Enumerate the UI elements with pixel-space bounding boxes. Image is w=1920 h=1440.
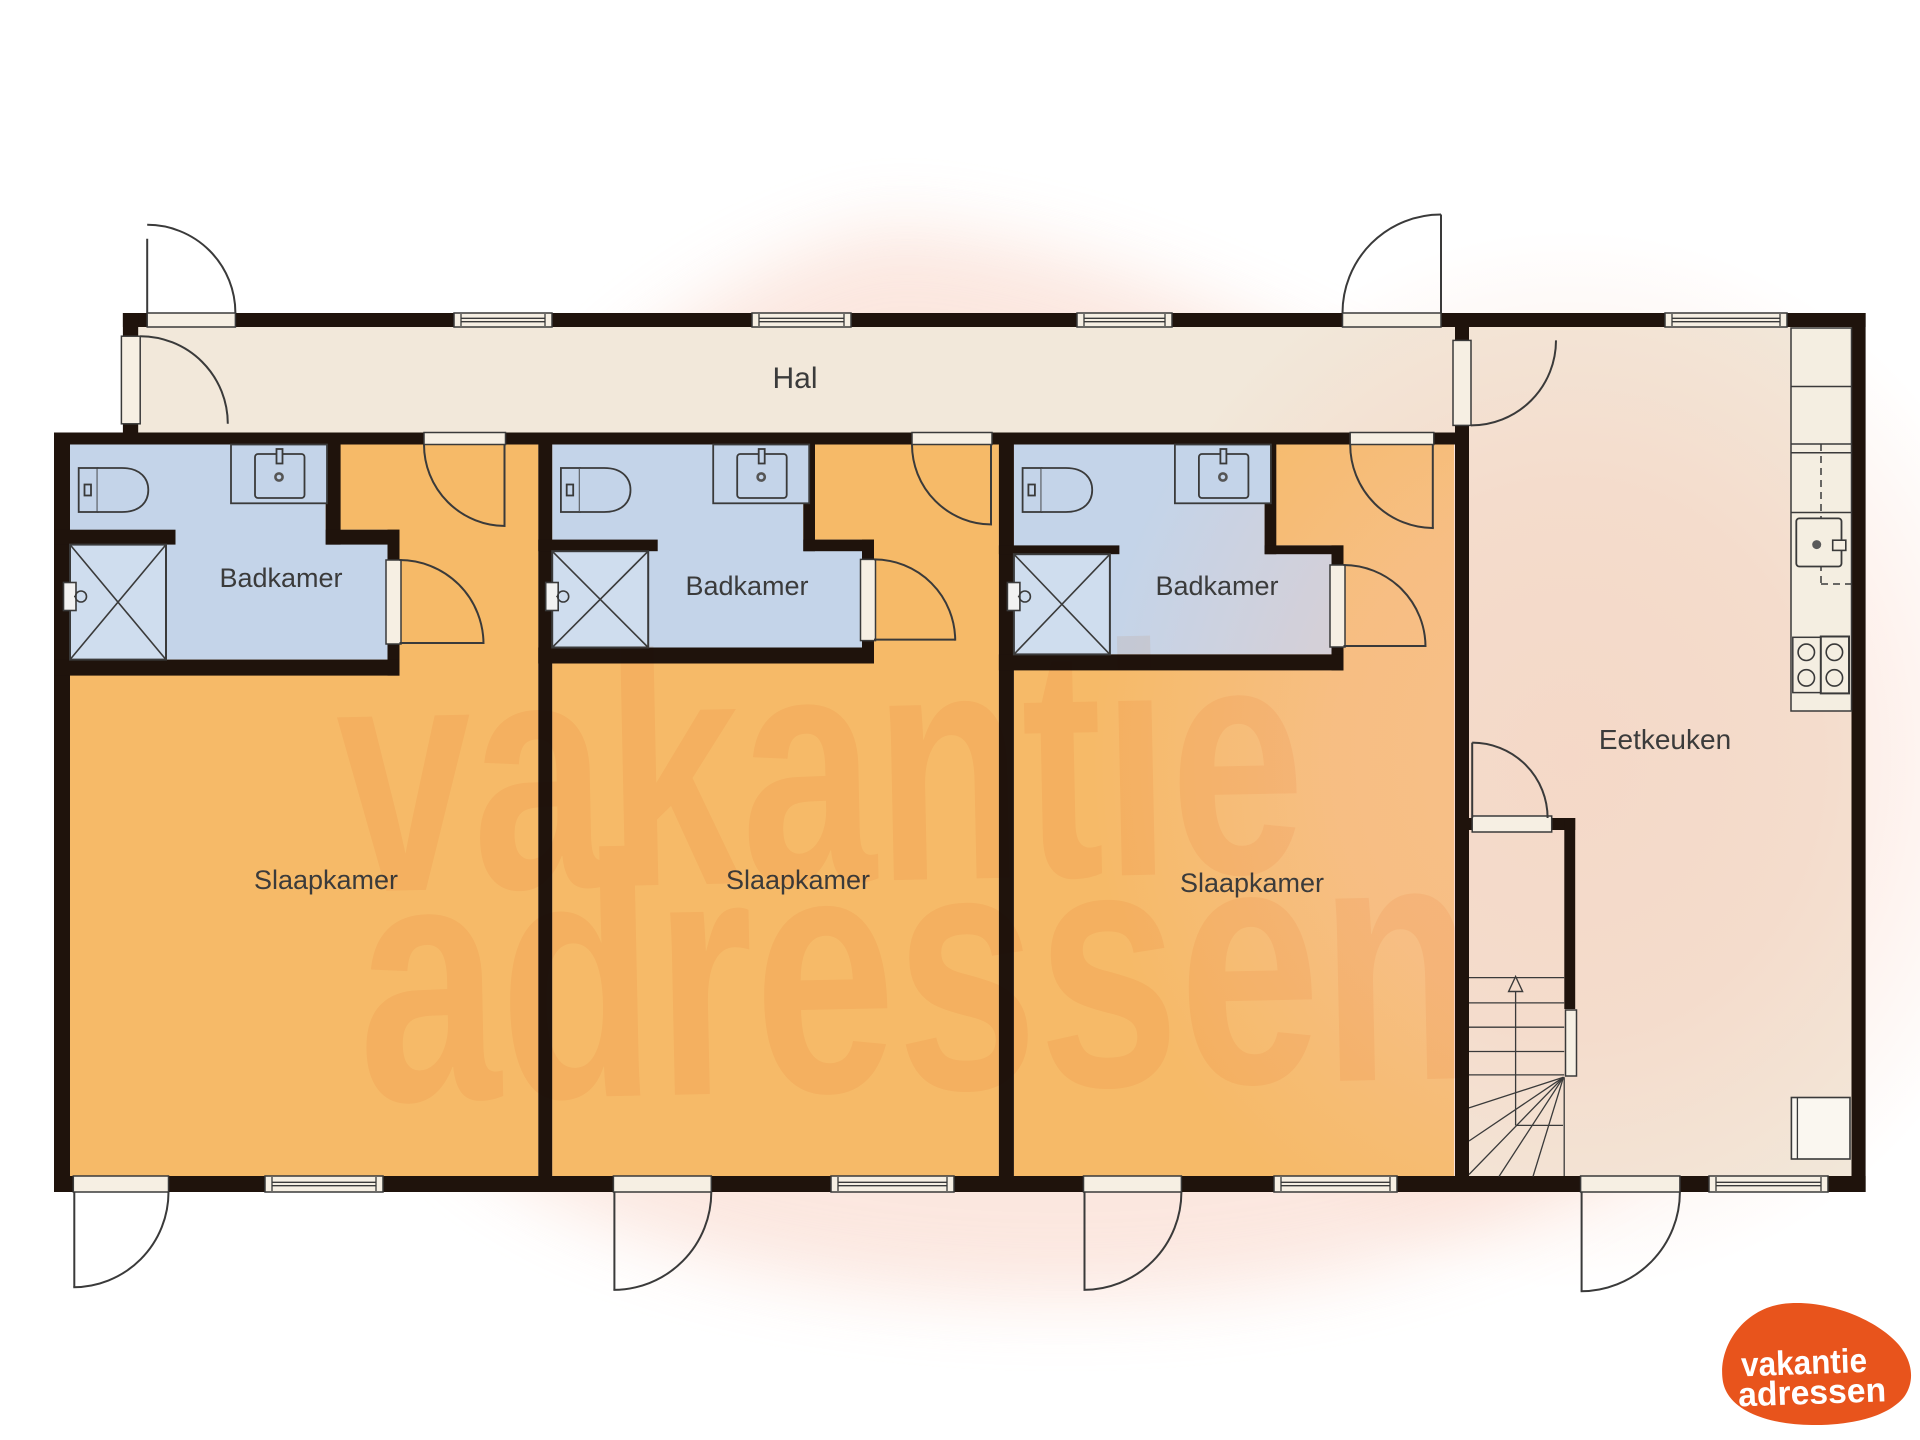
svg-text:adressen: adressen bbox=[354, 767, 1480, 1175]
svg-text:Badkamer: Badkamer bbox=[219, 563, 342, 593]
svg-text:Eetkeuken: Eetkeuken bbox=[1599, 724, 1731, 755]
svg-text:adressen: adressen bbox=[1737, 1371, 1886, 1414]
svg-text:Hal: Hal bbox=[772, 362, 817, 395]
